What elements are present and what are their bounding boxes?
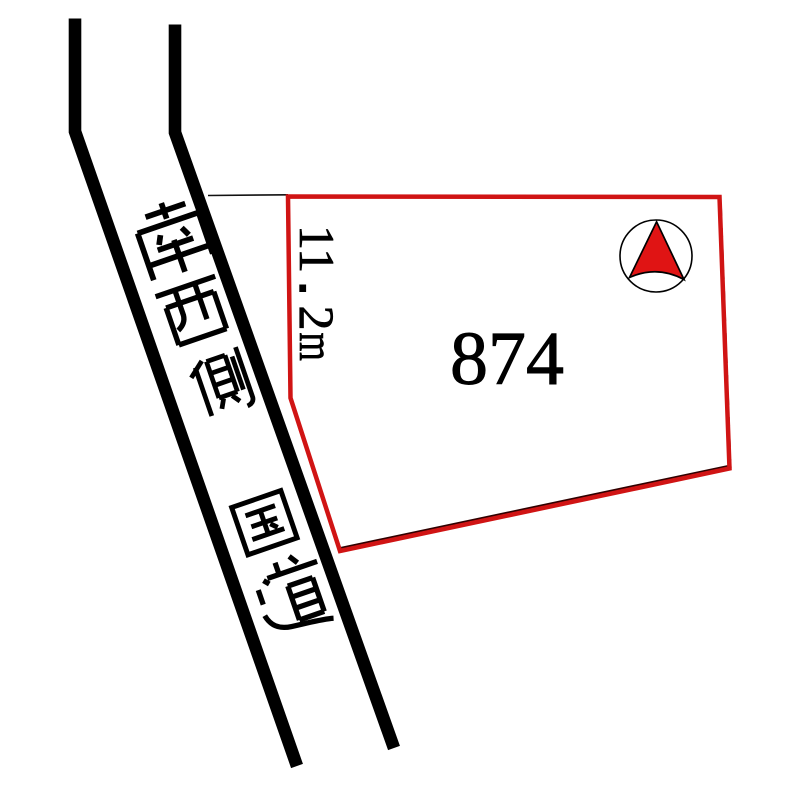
- svg-text:2: 2: [289, 306, 345, 331]
- svg-text:11: 11: [289, 225, 345, 273]
- svg-text:874: 874: [450, 317, 564, 401]
- svg-text:m: m: [289, 333, 344, 361]
